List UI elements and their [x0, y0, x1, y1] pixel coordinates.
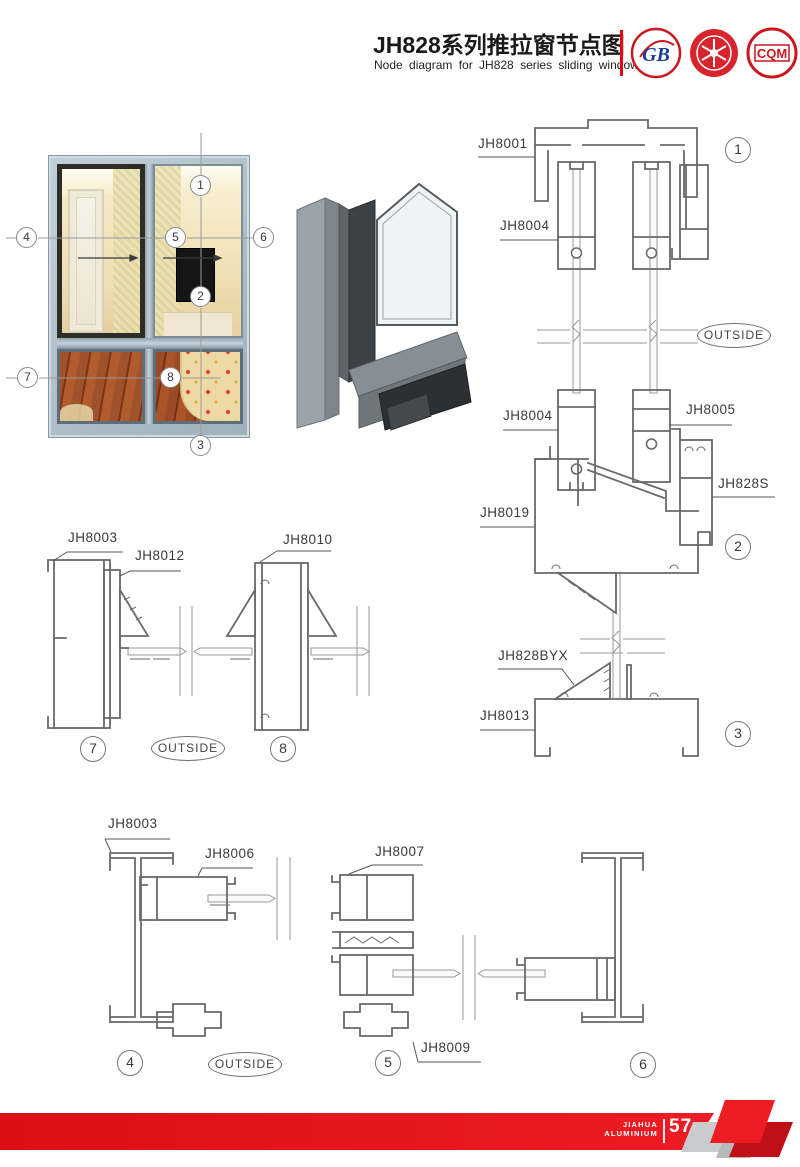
photo-callout-7: 7: [17, 367, 38, 388]
svg-text:GB: GB: [642, 44, 670, 66]
header-divider: [620, 30, 623, 76]
section-number-7: 7: [80, 736, 106, 762]
label-jh8003: JH8003: [68, 530, 118, 545]
glass-pane: [650, 169, 657, 393]
section2-sash-bottom-jh8004: [558, 390, 595, 490]
section-number-3: 3: [725, 721, 751, 747]
section5-track-profile-jh8009: [344, 1004, 408, 1036]
quality-seal-icon: [688, 27, 740, 79]
label-jh8010: JH8010: [283, 532, 333, 547]
section3-bottom-frame-jh8013: [535, 693, 698, 756]
photo-callout-3: 3: [190, 435, 211, 456]
label-jh8007: JH8007: [375, 844, 425, 859]
footer-brand-line1: JIAHUA: [540, 1120, 658, 1129]
section8-mullion-jh8010: [227, 563, 336, 730]
photo-callout-5: 5: [165, 227, 186, 248]
section-number-4: 4: [117, 1050, 143, 1076]
label-jh828byx: JH828BYX: [498, 648, 568, 663]
section2-channel-jh828s: [672, 429, 712, 545]
photo-callout-1: 1: [190, 175, 211, 196]
section6-frame: [517, 853, 643, 1022]
photo-callout-8: 8: [160, 367, 181, 388]
section2-sill-jh8019: [535, 447, 710, 613]
section7-sash-jh8012: [104, 570, 170, 718]
photo-callout-6: 6: [253, 227, 274, 248]
label-jh8004: JH8004: [500, 218, 550, 233]
section7-frame-jh8003: [48, 560, 110, 728]
label-jh8012: JH8012: [135, 548, 185, 563]
section2-sash-bottom-jh8005: [633, 390, 670, 482]
footer-brand-line2: ALUMINIUM: [540, 1129, 658, 1138]
photo-callout-4: 4: [16, 227, 37, 248]
footer-brand: JIAHUA ALUMINIUM: [540, 1120, 658, 1138]
cqm-logo: CQM: [746, 27, 798, 79]
section-number-2: 2: [725, 534, 751, 560]
outside-label: OUTSIDE: [208, 1052, 282, 1077]
label-jh8006: JH8006: [205, 846, 255, 861]
page-title: JH828系列推拉窗节点图: [373, 26, 623, 60]
svg-text:CQM: CQM: [757, 46, 787, 61]
label-jh8005: JH8005: [686, 402, 736, 417]
section4-track-profile: [157, 1004, 221, 1036]
section-number-1: 1: [725, 137, 751, 163]
photo-callout-lines: [0, 125, 300, 465]
label-jh8009: JH8009: [421, 1040, 471, 1055]
label-jh828s: JH828S: [718, 476, 769, 491]
section-number-5: 5: [375, 1050, 401, 1076]
horizontal-section-diagram-7-8: [20, 518, 420, 768]
section1-head-frame-jh8001: [535, 120, 697, 201]
glass-pane: [573, 169, 580, 393]
section-number-6: 6: [630, 1052, 656, 1078]
label-jh8019: JH8019: [480, 505, 530, 520]
section4-frame-jh8003: [110, 853, 173, 1022]
vertical-section-diagram: [470, 107, 800, 777]
catalog-page: JH828系列推拉窗节点图 Node diagram for JH828 ser…: [0, 0, 800, 1167]
section-number-8: 8: [270, 736, 296, 762]
label-jh8001: JH8001: [478, 136, 528, 151]
outside-label: OUTSIDE: [697, 323, 771, 348]
label-jh8003: JH8003: [108, 816, 158, 831]
gb-certification-logo: GB: [630, 27, 682, 79]
profile-3d-render: [287, 170, 477, 432]
footer-decorative-shapes: [655, 1078, 800, 1167]
label-jh8013: JH8013: [480, 708, 530, 723]
label-jh8004: JH8004: [503, 408, 553, 423]
photo-callout-2: 2: [190, 286, 211, 307]
page-subtitle: Node diagram for JH828 series sliding wi…: [374, 58, 617, 72]
outside-label: OUTSIDE: [151, 736, 225, 761]
